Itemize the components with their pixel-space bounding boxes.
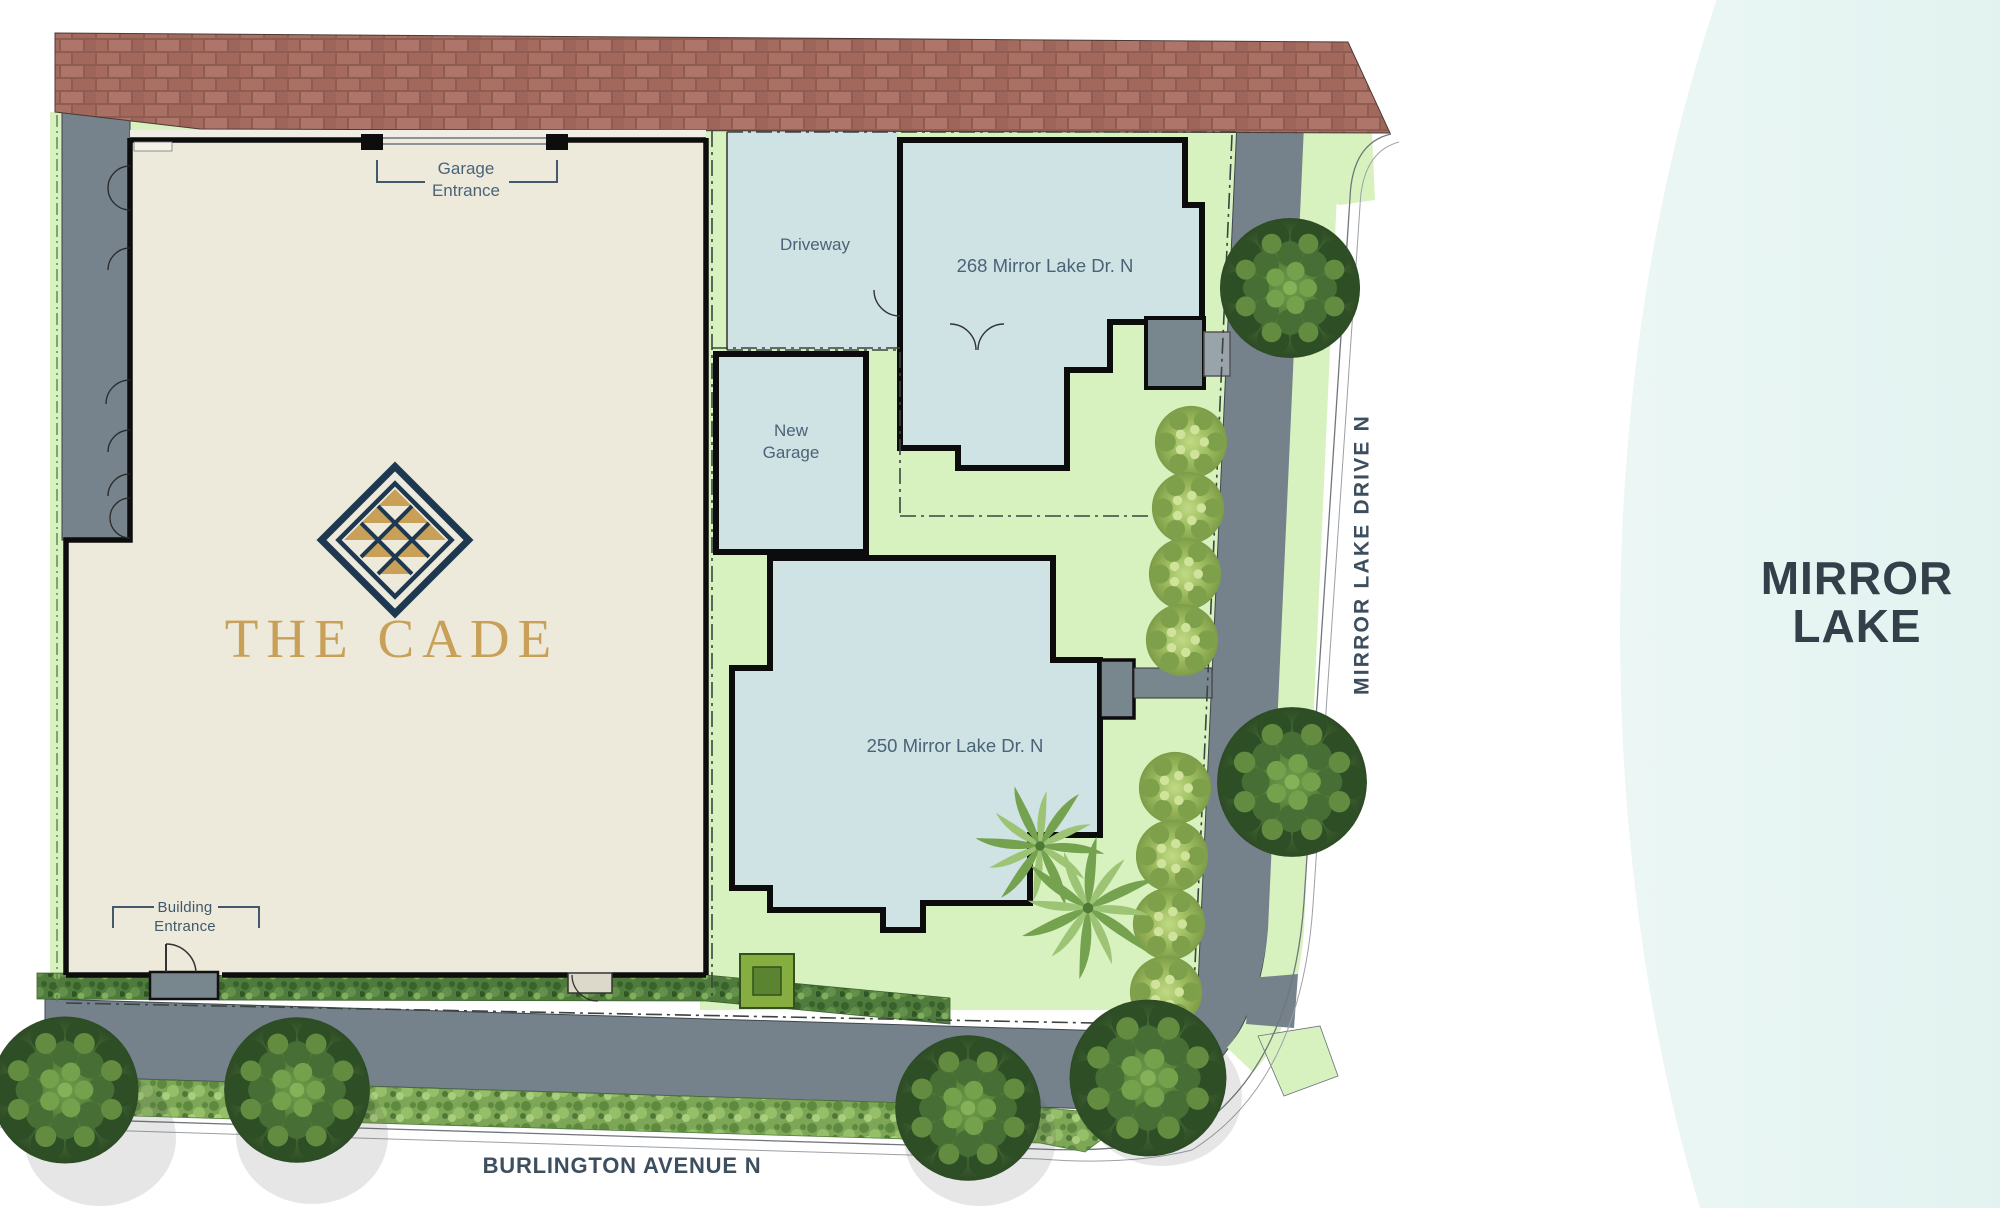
planter [740,954,794,1008]
bush [1155,406,1227,478]
side-step [568,973,612,993]
tree [1220,218,1360,358]
wall-recess [134,142,172,151]
house-268-porch [1146,318,1204,388]
bush [1149,538,1221,610]
mirror-lake-line2: LAKE [1705,602,2000,650]
building-entrance-stoop [150,972,218,999]
tree [1070,1000,1227,1157]
house-250-label: 250 Mirror Lake Dr. N [808,734,1102,758]
house-268-label: 268 Mirror Lake Dr. N [898,254,1192,278]
bush [1139,752,1211,824]
site-plan: Garage Entrance Building Entrance Drivew… [0,0,2000,1208]
brick-paving [55,33,1390,133]
tree [224,1017,370,1163]
burlington-avenue-label: BURLINGTON AVENUE N [422,1152,822,1180]
driveway-label: Driveway [735,234,895,256]
house-250-stoop [1100,660,1134,718]
bush [1146,604,1218,676]
the-cade-logo-title: THE CADE [142,604,642,674]
tree [1217,707,1367,857]
bush [1152,472,1224,544]
new-garage-line2: Garage [711,442,871,464]
garage-entrance-line2: Entrance [384,180,548,202]
west-alley [62,110,130,540]
building-entrance-bracket-left [112,906,154,928]
house-268-steps [1204,332,1230,376]
new-garage-line1: New [711,420,871,442]
garage-entrance-bracket-left [376,160,425,183]
mirror-lake-label: MIRROR LAKE [1705,554,2000,651]
new-garage-label: New Garage [711,420,871,464]
mirror-lake-line1: MIRROR [1705,554,2000,602]
mirror-lake-drive-label: MIRROR LAKE DRIVE N [1350,394,1377,714]
garage-entrance-bracket-right [509,160,558,183]
tree [895,1035,1041,1181]
building-entrance-bracket-right [218,906,260,928]
